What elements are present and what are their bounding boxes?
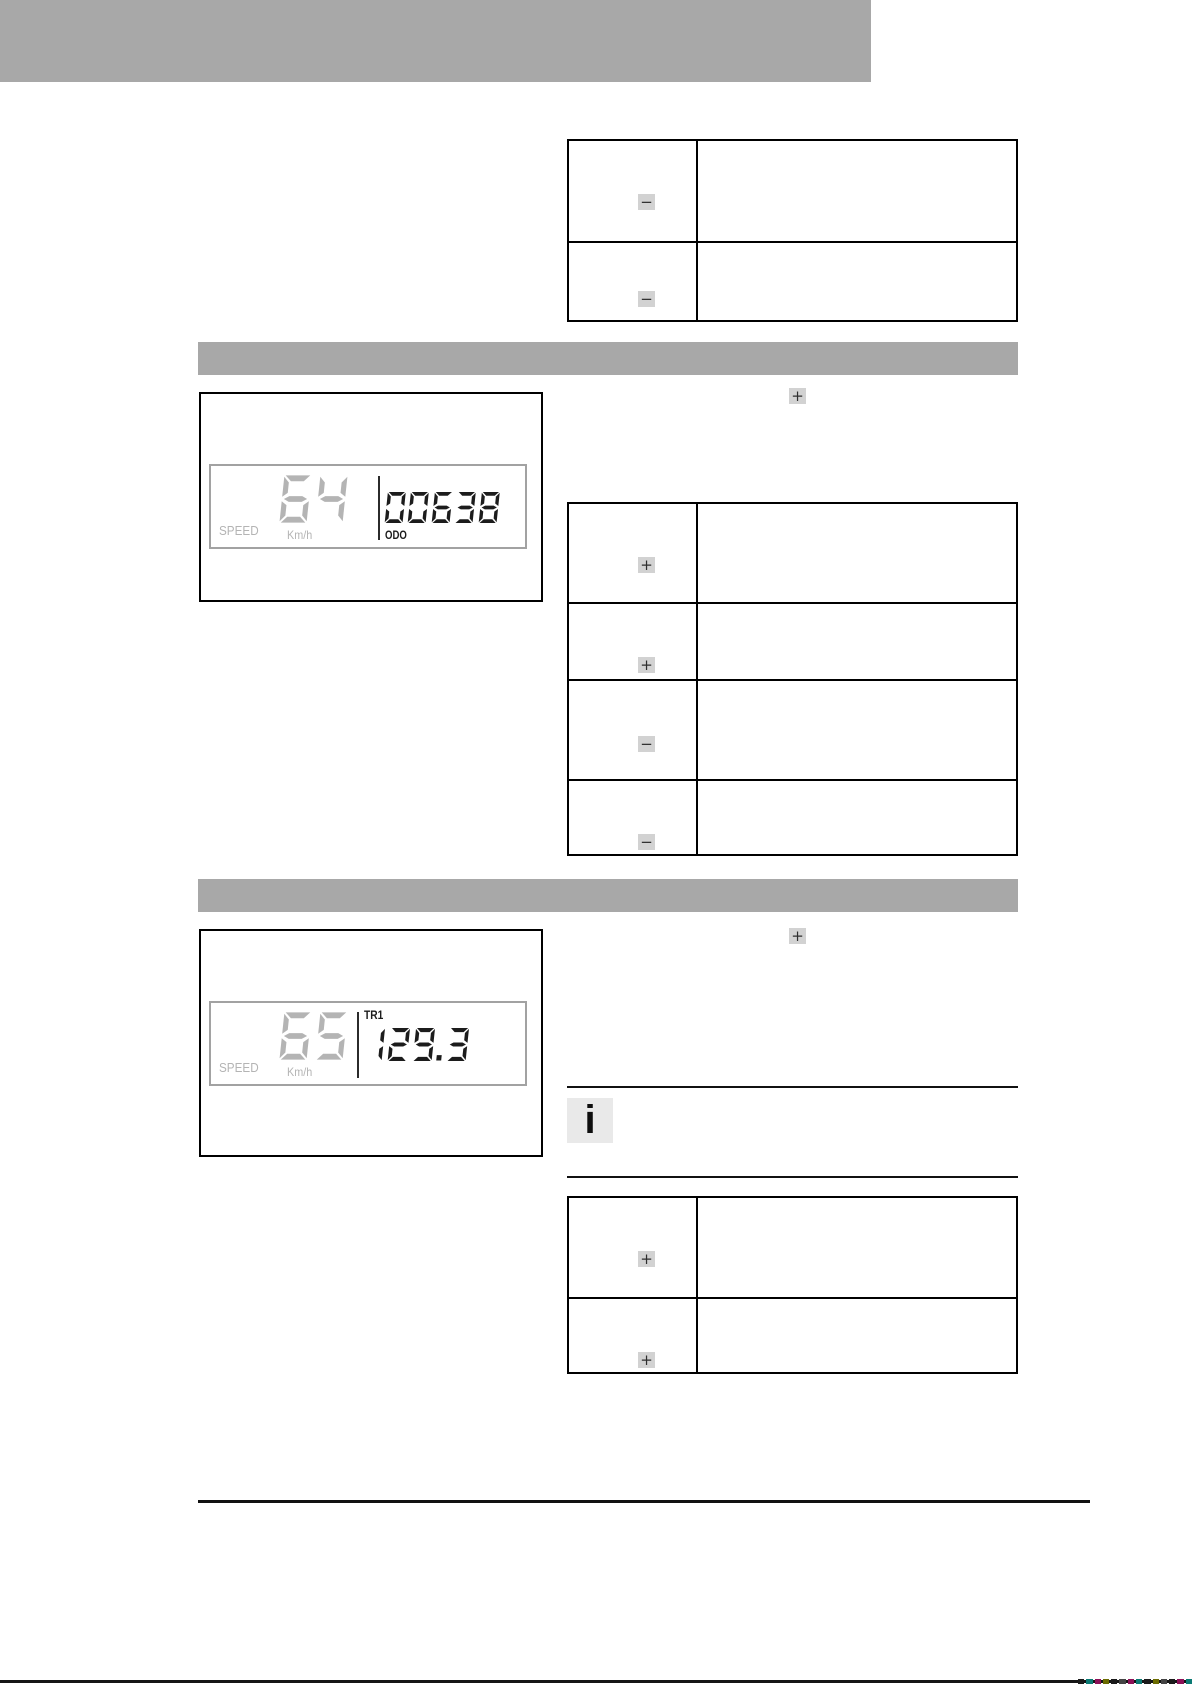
info-notice-rule-top xyxy=(567,1086,1018,1088)
print-mark-dash xyxy=(1103,1679,1109,1684)
minus-button-icon: − xyxy=(638,736,655,752)
table-row: − xyxy=(569,779,1016,854)
table-row: − xyxy=(569,679,1016,779)
plus-button-icon: + xyxy=(638,557,655,573)
description-cell xyxy=(698,1198,1016,1297)
print-mark-dash xyxy=(1128,1679,1134,1684)
print-mark-dash xyxy=(1119,1679,1125,1684)
footer-rule xyxy=(198,1500,1090,1503)
lcd-panel-1: SPEED Km/h ODO xyxy=(209,464,527,549)
table-row: + xyxy=(569,1297,1016,1372)
button-icon-cell: − xyxy=(569,681,698,779)
speed-digits xyxy=(277,474,349,524)
button-icon-cell: + xyxy=(569,604,698,679)
speed-digits xyxy=(277,1011,349,1061)
plus-button-icon: + xyxy=(638,1251,655,1267)
print-mark-dash xyxy=(1095,1679,1101,1684)
description-cell xyxy=(698,1299,1016,1372)
button-icon-cell: + xyxy=(569,1198,698,1297)
lcd-divider xyxy=(357,1012,359,1078)
tripmaster-digits xyxy=(361,1027,470,1062)
page-bottom-line xyxy=(0,1680,1192,1683)
minus-button-icon: − xyxy=(638,291,655,307)
print-mark-dash xyxy=(1111,1679,1117,1684)
print-mark-dash xyxy=(1177,1679,1183,1684)
minus-button-icon: − xyxy=(638,834,655,850)
inline-plus-button-icon: + xyxy=(789,928,806,944)
page-header-block xyxy=(0,0,871,82)
description-cell xyxy=(698,781,1016,854)
instruction-table-3: + + xyxy=(567,1196,1018,1374)
description-cell xyxy=(698,243,1016,320)
inline-plus-button-icon: + xyxy=(789,388,806,404)
speed-unit-label: Km/h xyxy=(287,528,312,542)
instruction-table-2: + + − − xyxy=(567,502,1018,856)
plus-button-icon: + xyxy=(638,1352,655,1368)
speed-label: SPEED xyxy=(219,1060,259,1075)
minus-button-icon: − xyxy=(638,194,655,210)
tripmaster-label: TR1 xyxy=(364,1008,383,1022)
table-row: − xyxy=(569,241,1016,320)
info-notice-rule-bottom xyxy=(567,1176,1018,1178)
print-mark-dash xyxy=(1078,1679,1084,1684)
print-mark-dash xyxy=(1144,1679,1150,1684)
button-icon-cell: − xyxy=(569,781,698,854)
odometer-digits xyxy=(383,491,501,524)
button-icon-cell: − xyxy=(569,243,698,320)
section-1-header-bar xyxy=(198,342,1018,375)
lcd-panel-2: SPEED Km/h TR1 xyxy=(209,1001,527,1086)
instruction-table-1: − − xyxy=(567,139,1018,322)
table-row: − xyxy=(569,141,1016,241)
button-icon-cell: + xyxy=(569,1299,698,1372)
section-2-header-bar xyxy=(198,879,1018,912)
print-registration-marks xyxy=(1078,1679,1192,1684)
table-row: + xyxy=(569,1198,1016,1297)
plus-button-icon: + xyxy=(638,657,655,673)
info-icon: i xyxy=(567,1098,613,1143)
description-cell xyxy=(698,604,1016,679)
print-mark-dash xyxy=(1169,1679,1175,1684)
print-mark-dash xyxy=(1153,1679,1159,1684)
print-mark-dash xyxy=(1186,1679,1192,1684)
button-icon-cell: + xyxy=(569,504,698,602)
print-mark-dash xyxy=(1136,1679,1142,1684)
odometer-label: ODO xyxy=(385,528,407,542)
speed-label: SPEED xyxy=(219,523,259,538)
button-icon-cell: − xyxy=(569,141,698,241)
lcd-divider xyxy=(378,476,380,540)
description-cell xyxy=(698,681,1016,779)
table-row: + xyxy=(569,602,1016,679)
manual-page: − − + SPEED Km/h ODO + + xyxy=(0,0,1192,1685)
print-mark-dash xyxy=(1086,1679,1092,1684)
table-row: + xyxy=(569,504,1016,602)
speed-unit-label: Km/h xyxy=(287,1065,312,1079)
print-mark-dash xyxy=(1161,1679,1167,1684)
description-cell xyxy=(698,141,1016,241)
description-cell xyxy=(698,504,1016,602)
